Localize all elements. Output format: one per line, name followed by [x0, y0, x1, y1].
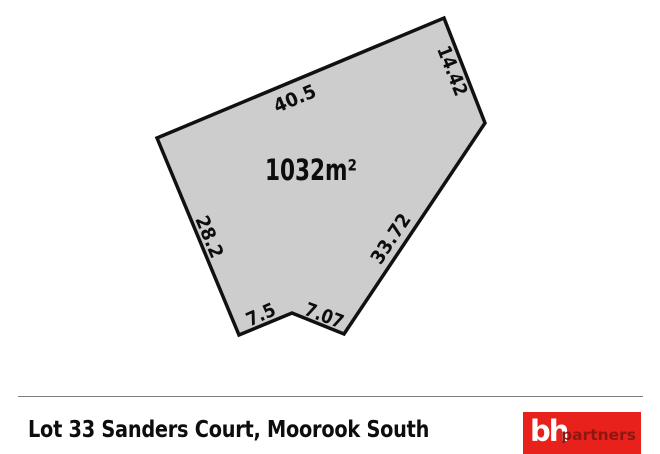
agency-logo-partners-text: partners	[561, 428, 636, 444]
agency-logo: bh partners	[523, 412, 641, 454]
lot-area-label: 1032m²	[265, 153, 357, 187]
address-title: Lot 33 Sanders Court, Moorook South	[28, 417, 429, 443]
lot-plan-diagram: 1032m² 40.5 14.42 33.72 7.07 7.5 28.2	[0, 0, 660, 390]
footer-divider	[18, 396, 643, 397]
